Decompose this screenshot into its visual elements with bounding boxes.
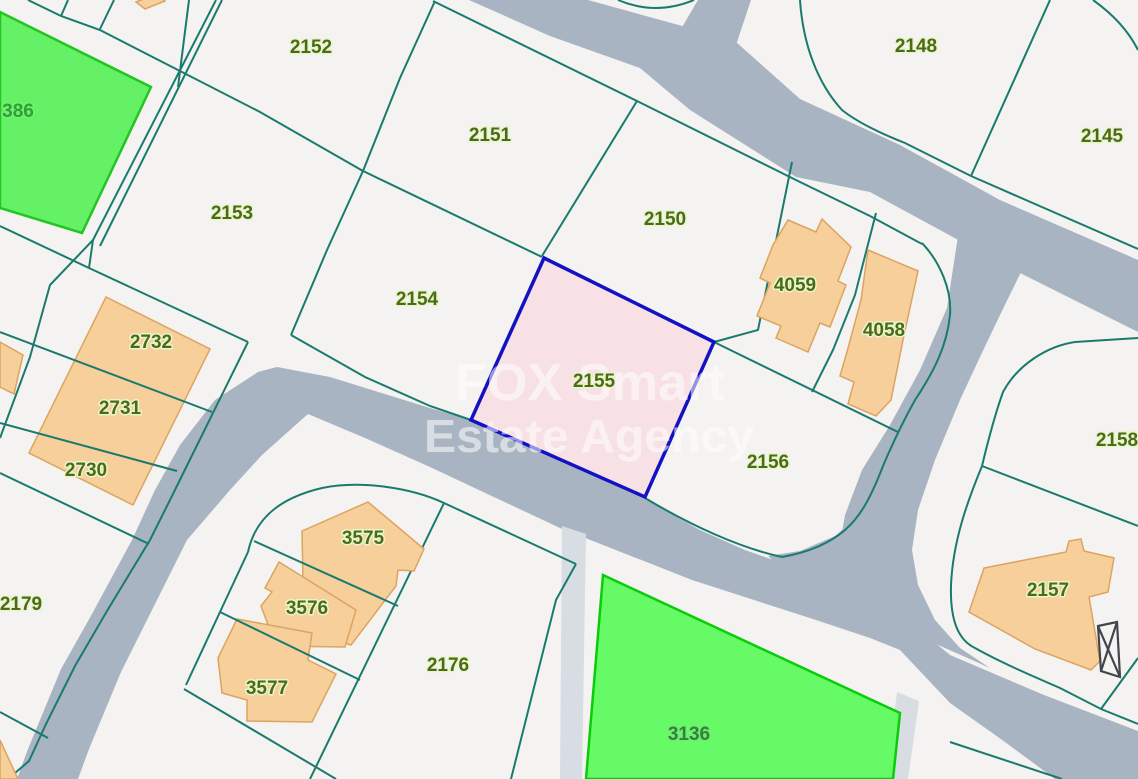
svg-text:2145: 2145 xyxy=(1081,126,1124,147)
svg-text:2176: 2176 xyxy=(427,655,469,676)
svg-text:2153: 2153 xyxy=(211,203,253,224)
svg-text:2730: 2730 xyxy=(65,460,107,481)
svg-text:2148: 2148 xyxy=(895,36,937,57)
svg-text:2158: 2158 xyxy=(1096,430,1138,451)
svg-text:4058: 4058 xyxy=(863,320,905,341)
svg-text:2155: 2155 xyxy=(573,371,616,392)
svg-text:3575: 3575 xyxy=(342,528,385,549)
svg-text:3577: 3577 xyxy=(246,678,288,699)
svg-text:2732: 2732 xyxy=(130,332,172,353)
svg-text:2154: 2154 xyxy=(396,289,439,310)
svg-text:2731: 2731 xyxy=(99,398,142,419)
svg-text:4059: 4059 xyxy=(774,275,816,296)
svg-text:3136: 3136 xyxy=(668,724,710,745)
svg-text:3576: 3576 xyxy=(286,598,328,619)
svg-text:2156: 2156 xyxy=(747,452,789,473)
svg-text:2150: 2150 xyxy=(644,209,686,230)
svg-text:Estate Agency: Estate Agency xyxy=(424,410,754,462)
svg-text:2152: 2152 xyxy=(290,37,332,58)
svg-text:386: 386 xyxy=(2,101,34,122)
svg-text:2179: 2179 xyxy=(0,594,42,615)
svg-text:2151: 2151 xyxy=(469,125,512,146)
svg-text:2157: 2157 xyxy=(1027,580,1069,601)
